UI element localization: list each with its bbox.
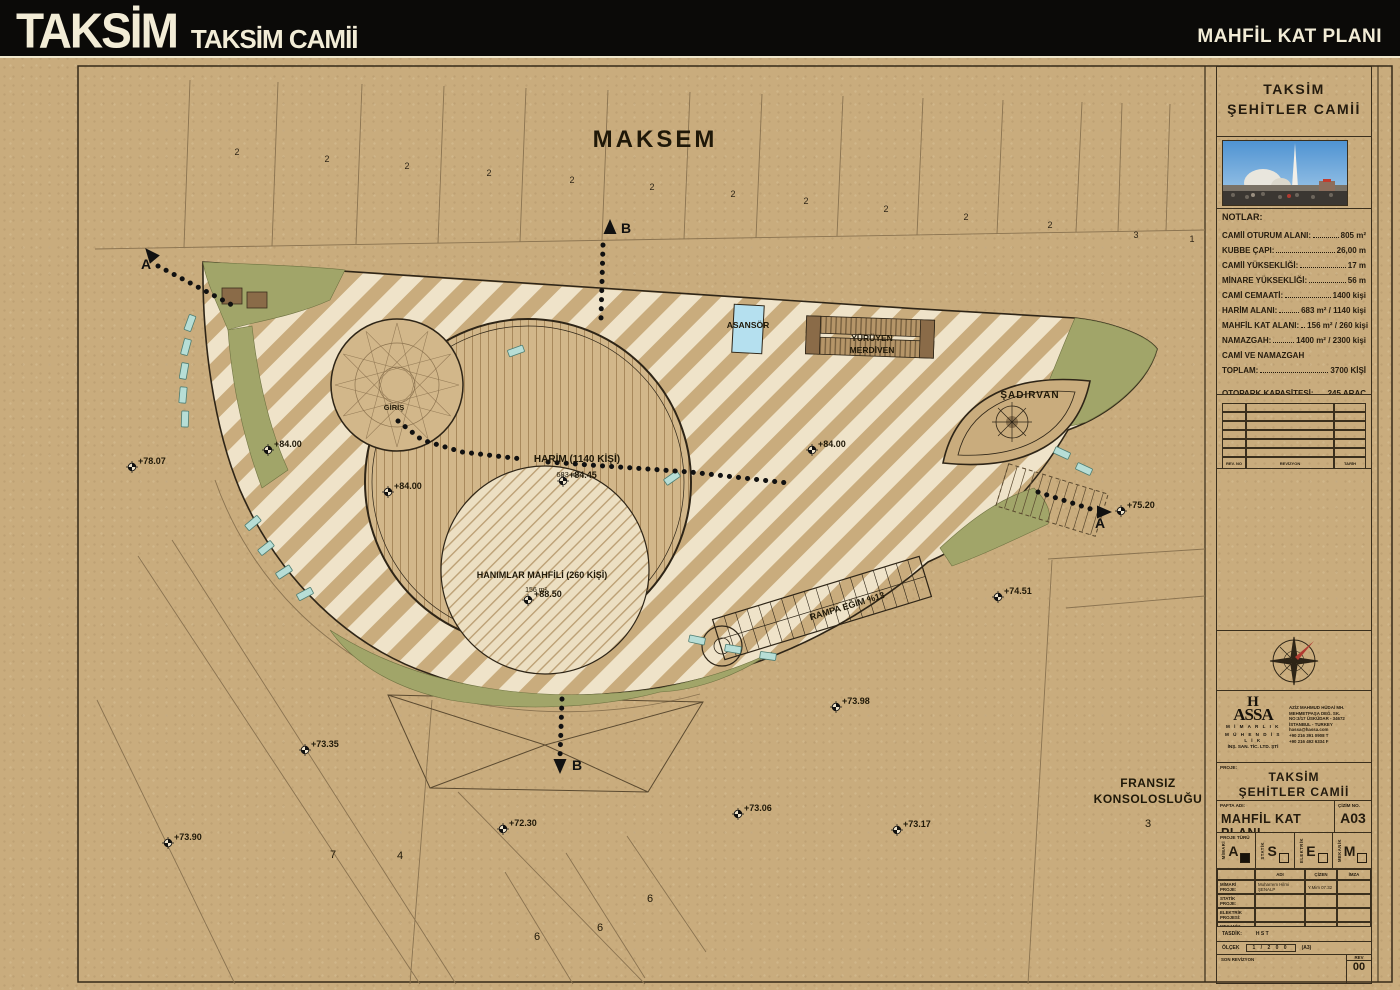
plan-label: MAKSEM	[593, 126, 718, 153]
revision-row	[1222, 403, 1366, 412]
elevation-value: +73.06	[744, 803, 772, 813]
plan-label: HARİM (1140 KİŞİ)	[534, 452, 620, 465]
note-row: OTOPARK KAPASİTESİ:245 ARAÇ	[1222, 383, 1366, 395]
parcel-number: 2	[486, 168, 491, 178]
project-type-label: PROJE TÜRÜ	[1220, 835, 1250, 840]
drawing-no-label: ÇİZİM NO.	[1338, 803, 1360, 808]
elevation-value: +73.35	[311, 739, 339, 749]
firm-address-line: +90 216 492 6334 F	[1289, 739, 1366, 745]
plan-label: ŞADIRVAN	[1000, 390, 1059, 401]
project-name-section: PROJE: TAKSİM ŞEHİTLER CAMİİ	[1217, 763, 1371, 801]
staff-row: ELEKTRİK PROJESİ:	[1217, 908, 1371, 922]
parcel-number: 2	[963, 212, 968, 222]
north-arrow-compass	[1268, 635, 1320, 687]
note-row: CAMİ CEMAATİ:1400 kişi	[1222, 285, 1366, 300]
plan-label: YÜRÜYEN	[851, 333, 893, 343]
elevation-marker: +74.51	[992, 586, 1032, 603]
sheet-name-section: PAFTA ADI: MAHFİL KAT PLANI ÇİZİM NO. A0…	[1217, 801, 1371, 833]
scale-value: 1 / 2 0 0	[1246, 944, 1296, 952]
project-label: PROJE:	[1220, 765, 1237, 770]
parcel-number: 2	[569, 175, 574, 185]
parcel-number: 2	[803, 196, 808, 206]
note-row: MİNARE YÜKSEKLİĞİ:56 m	[1222, 270, 1366, 285]
firm-line2: M Ü H E N D İ S L İ K	[1222, 732, 1284, 744]
parcel-number: 2	[649, 182, 654, 192]
plan-label: FRANSIZ	[1120, 776, 1176, 790]
elevation-marker: +75.20	[1115, 500, 1155, 517]
elevation-value: +73.98	[842, 696, 870, 706]
elevation-value: +84.00	[394, 481, 422, 491]
firm-line3: İNŞ. SAN. TİC. LTD. ŞTİ	[1222, 744, 1284, 750]
elevation-marker: +72.30	[497, 818, 537, 835]
elevation-marker: +73.06	[732, 803, 772, 820]
section-marker: A	[1095, 506, 1112, 532]
elevation-marker: +73.98	[830, 696, 870, 713]
plan-label: 683 m²	[556, 470, 580, 479]
section-marker: B	[554, 757, 583, 774]
staff-header-row: ADIÇİZENİMZA	[1217, 869, 1371, 880]
elevation-value: +74.51	[1004, 586, 1032, 596]
project-type-checkbox	[1240, 853, 1250, 863]
approval-value: H S T	[1256, 931, 1269, 937]
revision-table: REV. NOREVİZYONTARİH	[1217, 395, 1371, 469]
brand-logo: TAKSİM	[16, 6, 177, 55]
revision-row	[1222, 430, 1366, 439]
elevation-marker: +73.17	[891, 819, 931, 836]
approval-row: TASDİK: H S T	[1217, 927, 1371, 942]
revision-row	[1222, 448, 1366, 457]
note-row: MAHFİL KAT ALANI:156 m² / 260 kişi	[1222, 315, 1366, 330]
plan-label: 7	[330, 849, 336, 861]
plan-label: ASANSÖR	[727, 320, 770, 330]
plan-label: KONSOLOSLUĞU	[1094, 791, 1203, 806]
firm-logo-assa: ASSA	[1222, 708, 1284, 722]
sheet-name: MAHFİL KAT PLANI	[1221, 812, 1330, 833]
firm-address: AZİZ MAHMUD HÜDAİ MH.MEHMETPAŞA DEĞ. SK.…	[1284, 697, 1366, 760]
firm-logo: H ASSA M İ M A R L I K M Ü H E N D İ S L…	[1222, 697, 1284, 760]
last-revision-row: SON REVİZYON REV 00	[1217, 955, 1371, 983]
parcel-number: 2	[883, 204, 888, 214]
revision-header-row: REV. NOREVİZYONTARİH	[1222, 457, 1366, 469]
site-plan-drawing: +78.07+84.00+84.00+84.45+84.00+88.50+75.…	[0, 0, 1400, 990]
plan-label: 3	[1145, 818, 1151, 830]
panel-project-title: TAKSİM ŞEHİTLER CAMİİ	[1217, 67, 1371, 137]
staff-table: ADIÇİZENİMZAMİMARİ PROJE:Muharrem Hilmi …	[1217, 869, 1371, 927]
plan-label: HANIMLAR MAHFİLİ (260 KİŞİ)	[477, 570, 608, 580]
project-type-section: PROJE TÜRÜ MİMARİASTATİKSELEKTRİKEMEKANİ…	[1217, 833, 1371, 869]
approval-label: TASDİK:	[1222, 931, 1242, 937]
parcel-number: 1	[1189, 234, 1194, 244]
plan-label: 4	[397, 850, 403, 862]
section-letter: A	[141, 256, 151, 272]
project-title-line2: ŞEHİTLER CAMİİ	[1222, 99, 1366, 119]
section-letter: B	[621, 220, 631, 236]
entrance-dome-circle	[331, 319, 463, 451]
scale-label: ÖLÇEK	[1222, 945, 1240, 951]
elevation-value: +72.30	[509, 818, 537, 828]
firm-line1: M İ M A R L I K	[1222, 724, 1284, 730]
plan-label: 156 m²	[525, 587, 547, 594]
title-block-panel: TAKSİM ŞEHİTLER CAMİİ NOTLAR:	[1216, 66, 1372, 984]
parcel-number: 2	[730, 189, 735, 199]
project-name-line1: TAKSİM	[1222, 770, 1366, 785]
scale-row: ÖLÇEK 1 / 2 0 0 (A3)	[1217, 942, 1371, 955]
elevation-marker: +78.07	[126, 456, 166, 473]
notes-title: NOTLAR:	[1222, 212, 1366, 222]
elevation-marker: +73.35	[299, 739, 339, 756]
photo-section	[1217, 137, 1371, 209]
notes-section: NOTLAR: CAMİİ OTURUM ALANI:805 m²KUBBE Ç…	[1217, 209, 1371, 395]
roof-building	[388, 695, 703, 792]
project-type-checkbox	[1357, 853, 1367, 863]
plan-label: 6	[647, 893, 653, 905]
revision-row	[1222, 439, 1366, 448]
parcel-number: 2	[1047, 220, 1052, 230]
project-type-M: MEKANİKM	[1332, 833, 1371, 868]
parcel-number: 2	[404, 161, 409, 171]
sheet-title: MAHFİL KAT PLANI	[1197, 26, 1382, 48]
project-type-checkbox	[1279, 853, 1289, 863]
empty-box	[1217, 469, 1371, 631]
brand-subtitle: TAKSİM CAMİİ	[191, 26, 358, 52]
drawing-sheet: TAKSİM TAKSİM CAMİİ MAHFİL KAT PLANI	[0, 0, 1400, 990]
project-name-line2: ŞEHİTLER CAMİİ	[1222, 785, 1366, 800]
note-row: NAMAZGAH:1400 m² / 2300 kişi	[1222, 330, 1366, 345]
staff-row: STATİK PROJE:	[1217, 894, 1371, 908]
plan-label: 6	[597, 922, 603, 934]
revision-row	[1222, 421, 1366, 430]
plan-label: 6	[534, 931, 540, 943]
plan-label: GİRİŞ	[384, 403, 404, 412]
parcel-number: 2	[234, 147, 239, 157]
scale-extra: (A3)	[1302, 945, 1312, 951]
header-bar: TAKSİM TAKSİM CAMİİ MAHFİL KAT PLANI	[0, 0, 1400, 58]
project-type-checkbox	[1318, 853, 1328, 863]
elevation-value: +73.90	[174, 832, 202, 842]
section-letter: A	[1095, 515, 1105, 531]
drawing-no: A03	[1335, 810, 1371, 826]
project-type-S: STATİKS	[1255, 833, 1294, 868]
parcel-numbers: 2222222222231	[234, 147, 1194, 244]
plan-label: MERDİVEN	[850, 345, 895, 355]
project-type-E: ELEKTRİKE	[1294, 833, 1333, 868]
elevation-marker: +73.90	[162, 832, 202, 849]
compass-section	[1217, 631, 1371, 691]
elevation-value: +84.00	[818, 439, 846, 449]
staff-row: MİMARİ PROJE:Muharrem Hilmi ŞENALPY.Mim …	[1217, 880, 1371, 894]
elevation-value: +73.17	[903, 819, 931, 829]
elevation-value: +78.07	[138, 456, 166, 466]
parcel-number: 3	[1133, 230, 1138, 240]
revision-row	[1222, 412, 1366, 421]
note-row: HARİM ALANI:683 m² / 1140 kişi	[1222, 300, 1366, 315]
note-row: CAMİİ YÜKSEKLİĞİ:17 m	[1222, 255, 1366, 270]
mosque-photo	[1222, 140, 1348, 206]
firm-section: H ASSA M İ M A R L I K M Ü H E N D İ S L…	[1217, 691, 1371, 763]
notes-list: CAMİİ OTURUM ALANI:805 m²KUBBE ÇAPI:26,0…	[1222, 225, 1366, 395]
project-title-line1: TAKSİM	[1222, 79, 1366, 99]
parcel-number: 2	[324, 154, 329, 164]
note-row: TOPLAM:3700 KİŞİ	[1222, 360, 1366, 375]
elevation-value: +75.20	[1127, 500, 1155, 510]
note-row: CAMİİ OTURUM ALANI:805 m²	[1222, 225, 1366, 240]
note-row: KUBBE ÇAPI:26,00 m	[1222, 240, 1366, 255]
last-revision-label: SON REVİZYON	[1217, 955, 1346, 983]
elevation-value: +84.00	[274, 439, 302, 449]
note-row: CAMİ VE NAMAZGAH	[1222, 345, 1366, 360]
sheet-name-label: PAFTA ADI:	[1220, 803, 1245, 808]
section-marker: B	[604, 219, 632, 236]
rev-number: 00	[1347, 961, 1371, 973]
section-letter: B	[572, 757, 582, 773]
